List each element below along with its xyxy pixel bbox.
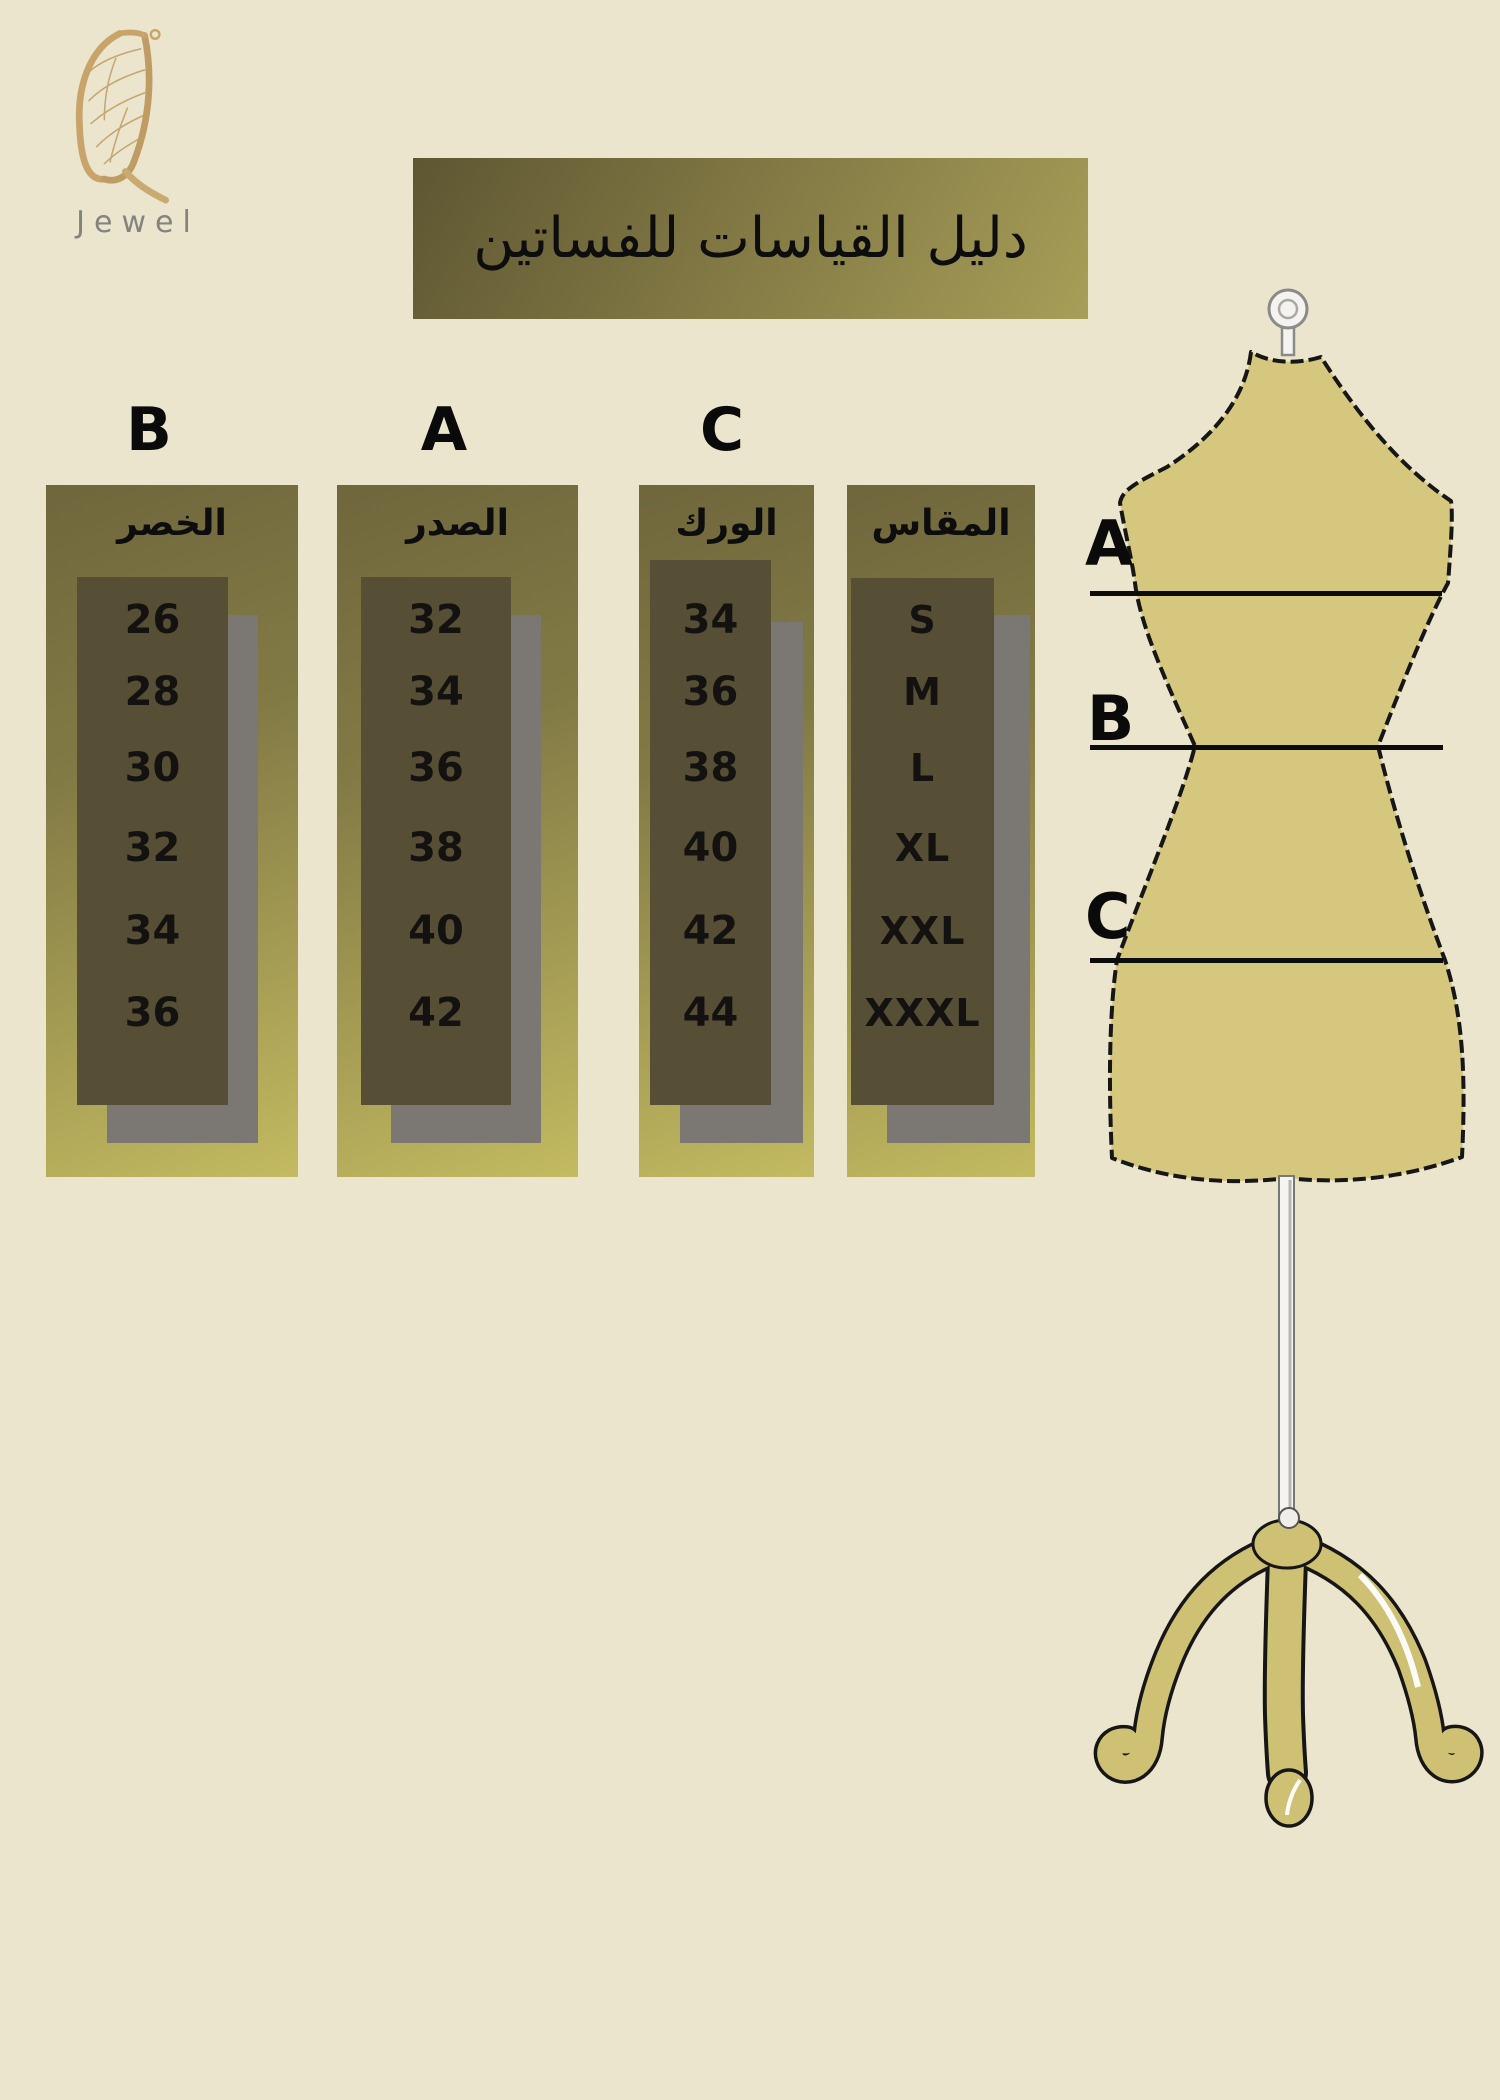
waist-value: 28 <box>77 668 228 716</box>
mannequin-tripod-legs <box>1110 1508 1468 1826</box>
mannequin-label-a: A <box>1085 513 1175 575</box>
size-value: XL <box>851 824 994 872</box>
size-table-header: المقاس <box>847 498 1035 550</box>
hip-value: 38 <box>650 744 771 792</box>
hip-table-values: 34 36 38 40 42 44 <box>650 560 771 1105</box>
page-title: دليل القياسات للفساتين <box>473 211 1028 267</box>
waist-table-header: الخصر <box>46 498 298 550</box>
bust-table-values: 32 34 36 38 40 42 <box>361 577 511 1105</box>
column-letter-b: B <box>99 398 199 462</box>
hip-value: 42 <box>650 907 771 955</box>
waist-value: 30 <box>77 744 228 792</box>
waist-table-values: 26 28 30 32 34 36 <box>77 577 228 1105</box>
bust-value: 34 <box>361 668 511 716</box>
hip-value: 40 <box>650 824 771 872</box>
bust-measure-line <box>1090 591 1442 596</box>
hip-value: 36 <box>650 668 771 716</box>
bust-value: 42 <box>361 989 511 1037</box>
mannequin-stand-pole <box>1279 1176 1294 1556</box>
bust-value: 40 <box>361 907 511 955</box>
bust-value: 36 <box>361 744 511 792</box>
bust-table-header: الصدر <box>337 498 578 550</box>
hip-value: 34 <box>650 596 771 644</box>
size-value: XXXL <box>851 989 994 1037</box>
size-value: XXL <box>851 907 994 955</box>
waist-measure-line <box>1090 745 1443 750</box>
size-value: M <box>851 668 994 716</box>
waist-value: 32 <box>77 824 228 872</box>
brand-logo-butterfly-icon <box>55 22 215 204</box>
brand-name: Jewel <box>55 200 221 246</box>
column-letter-a: A <box>394 398 494 462</box>
bust-value: 32 <box>361 596 511 644</box>
waist-value: 36 <box>77 989 228 1037</box>
title-banner: دليل القياسات للفساتين <box>413 158 1088 319</box>
bust-value: 38 <box>361 824 511 872</box>
column-letter-c: C <box>672 398 772 462</box>
waist-value: 26 <box>77 596 228 644</box>
size-guide-page: Jewel دليل القياسات للفساتين B A C الخصر… <box>0 0 1500 2100</box>
waist-value: 34 <box>77 907 228 955</box>
hip-value: 44 <box>650 989 771 1037</box>
hip-measure-line <box>1090 958 1443 963</box>
size-table-values: S M L XL XXL XXXL <box>851 578 994 1105</box>
mannequin-label-c: C <box>1085 886 1175 948</box>
size-value: L <box>851 744 994 792</box>
hip-table-header: الورك <box>639 498 814 550</box>
size-value: S <box>851 596 994 644</box>
mannequin-label-b: B <box>1087 688 1177 750</box>
